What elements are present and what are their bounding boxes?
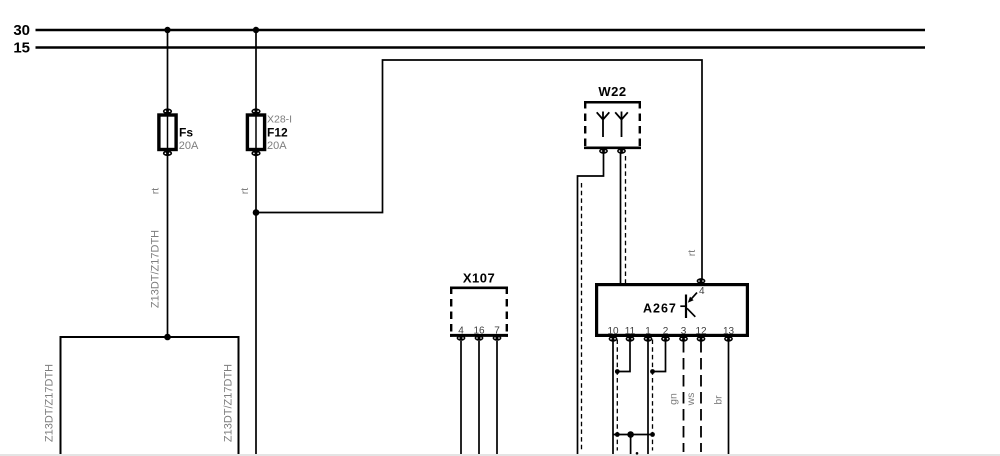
svg-text:10: 10 [607,326,619,337]
svg-text:3: 3 [681,326,687,337]
svg-text:15: 15 [13,40,30,57]
svg-text:rt: rt [686,250,698,256]
svg-text:Z13DT/Z17DTH: Z13DT/Z17DTH [223,364,235,442]
svg-text:rt: rt [239,188,251,194]
svg-text:4: 4 [699,286,705,297]
svg-text:20A: 20A [267,140,287,152]
svg-text:1: 1 [645,326,651,337]
svg-text:11: 11 [625,326,636,337]
svg-text:ws: ws [685,393,697,407]
svg-text:Z13DT/Z17DTH: Z13DT/Z17DTH [44,364,56,442]
svg-text:30: 30 [13,22,30,39]
svg-text:4: 4 [458,326,464,337]
svg-text:rt: rt [150,188,162,194]
svg-text:Fs: Fs [179,125,193,139]
svg-text:gn: gn [668,393,680,405]
svg-text:2: 2 [663,326,669,337]
svg-text:W22: W22 [598,84,626,99]
svg-text:A267: A267 [643,302,677,316]
svg-text:20A: 20A [179,140,199,152]
svg-text:br: br [713,395,725,405]
svg-text:X107: X107 [463,271,495,286]
svg-text:X28-I: X28-I [267,114,292,126]
svg-text:13: 13 [723,326,735,337]
svg-text:16: 16 [473,326,485,337]
svg-text:Z13DT/Z17DTH: Z13DT/Z17DTH [150,230,162,308]
svg-text:7: 7 [494,326,500,337]
svg-text:12: 12 [695,326,707,337]
svg-text:F12: F12 [267,125,288,139]
